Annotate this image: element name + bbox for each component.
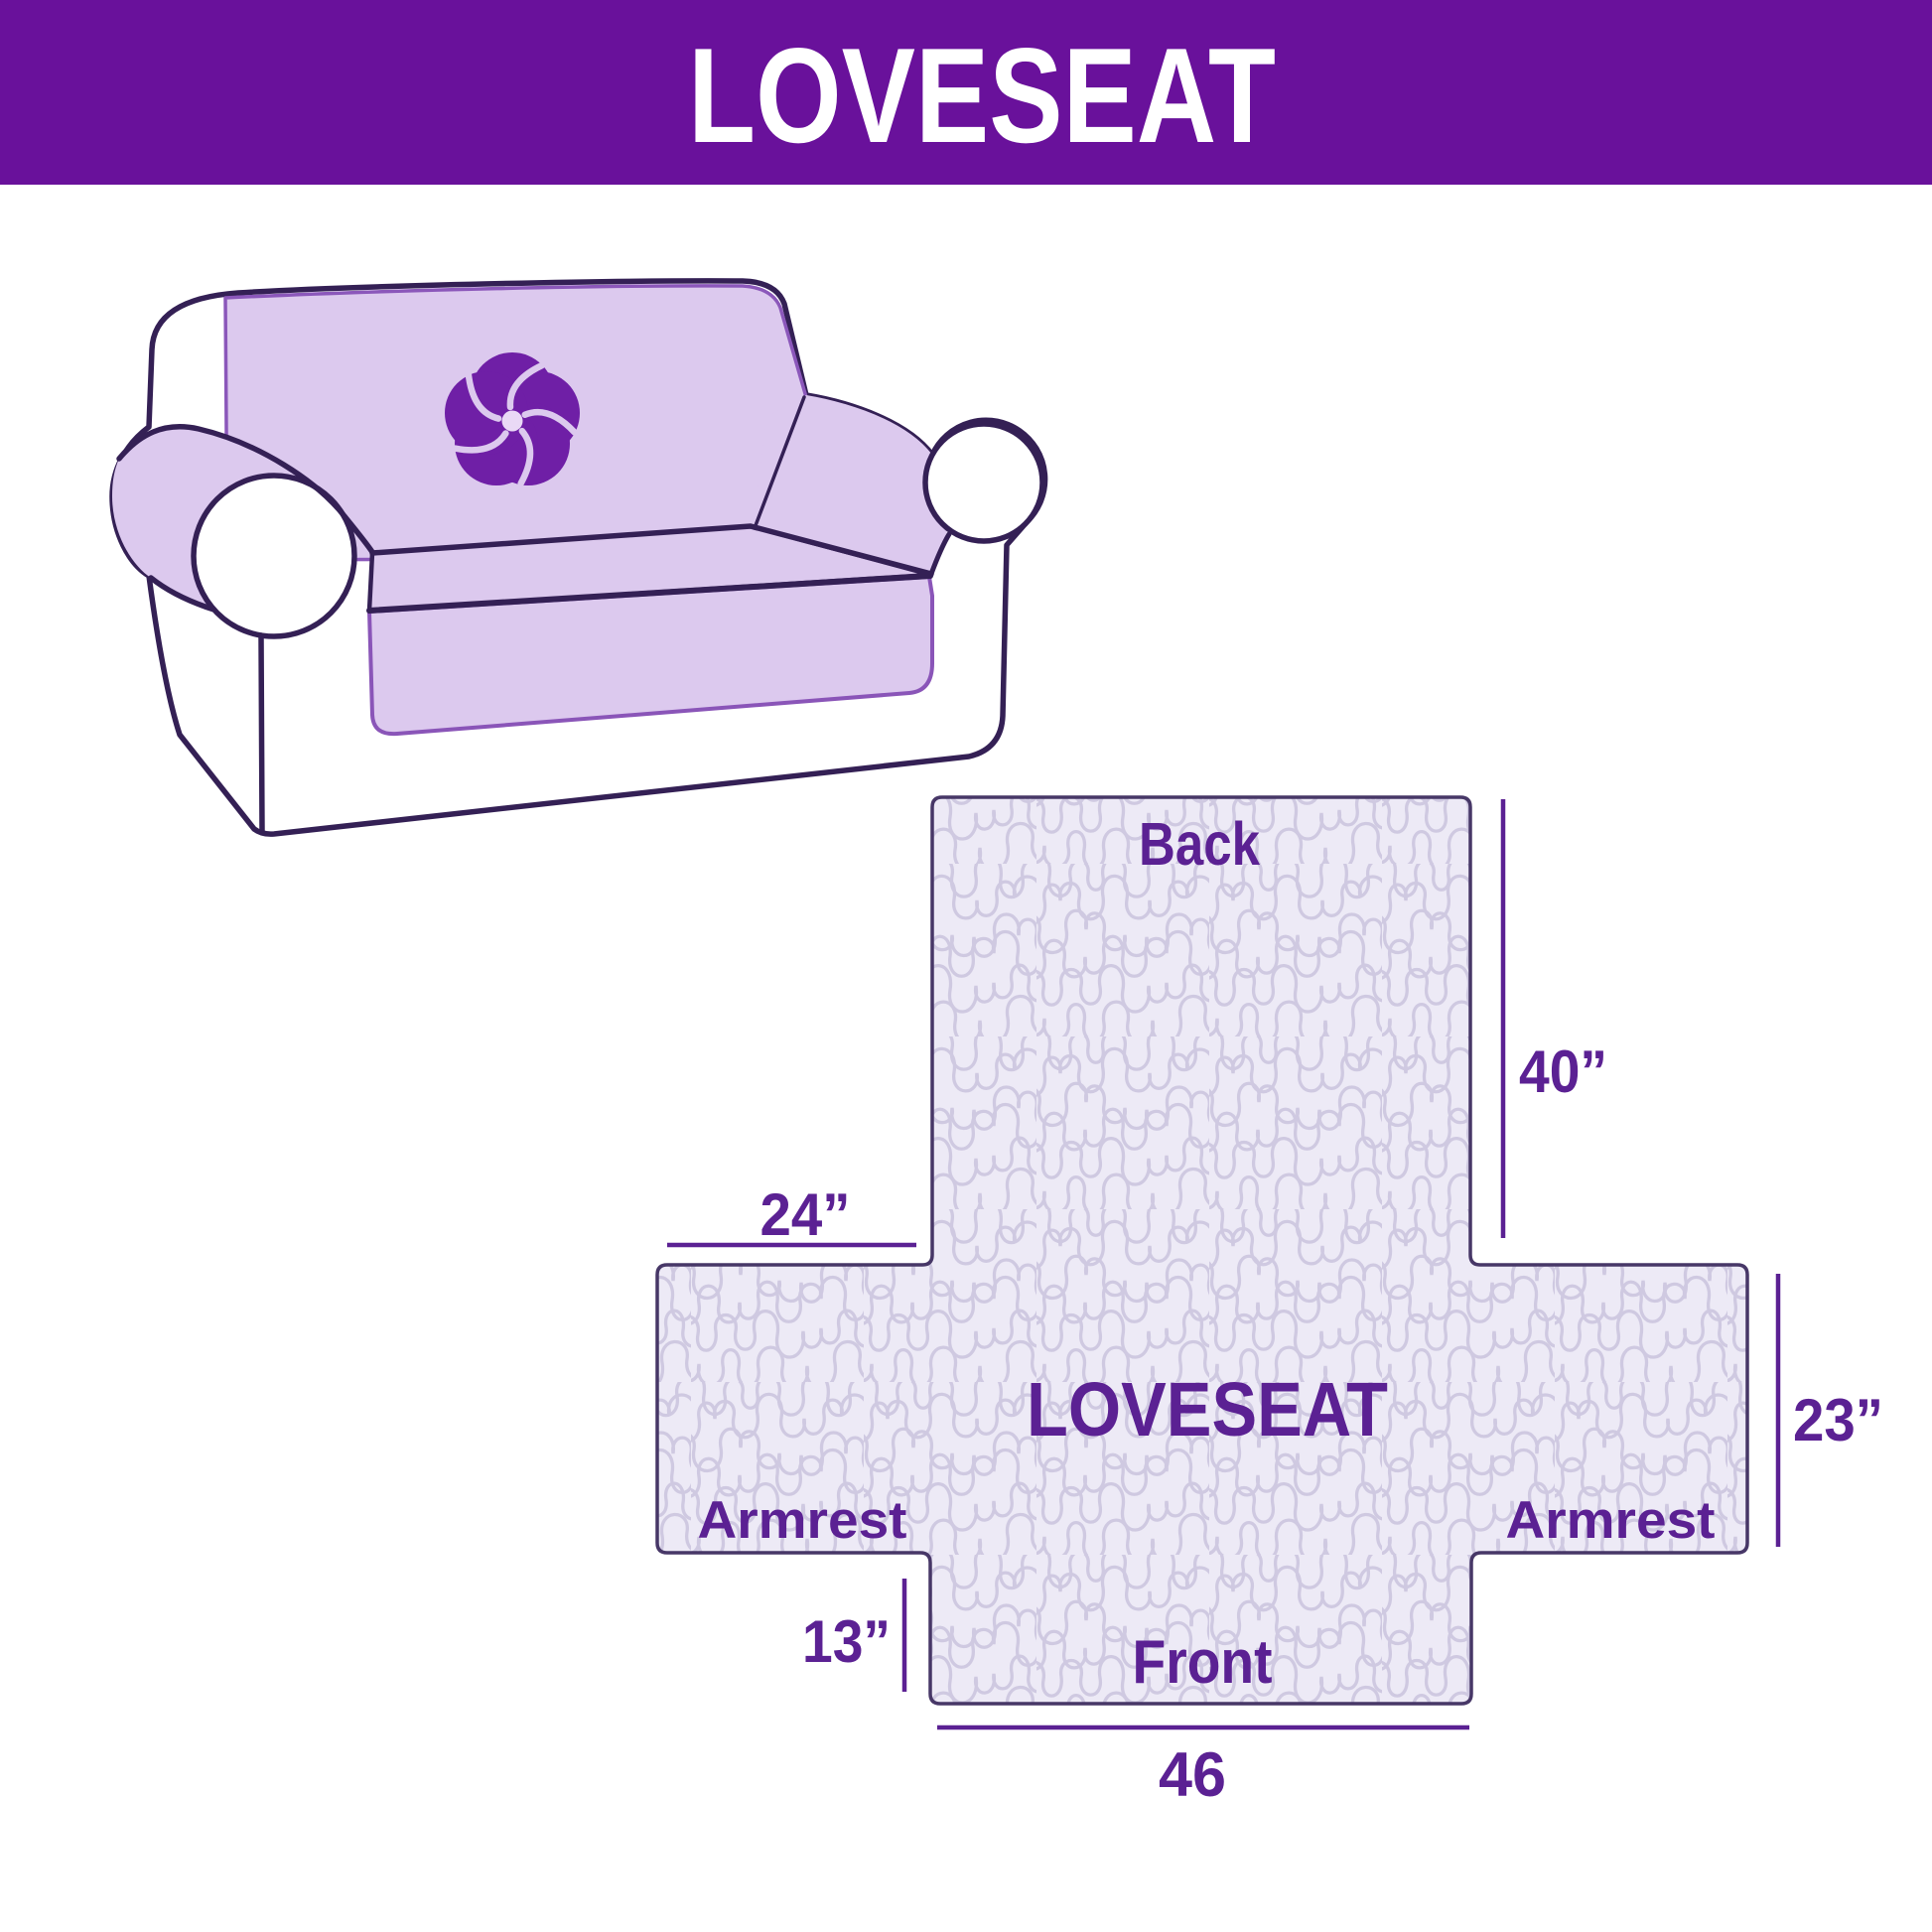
svg-text:Front: Front [1133,1628,1273,1697]
svg-text:40”: 40” [1519,1038,1607,1105]
svg-text:46: 46 [1159,1740,1226,1810]
svg-text:Armrest: Armrest [698,1491,907,1550]
svg-text:23”: 23” [1793,1387,1883,1453]
svg-text:13”: 13” [802,1608,891,1675]
svg-text:LOVESEAT: LOVESEAT [1027,1367,1388,1452]
svg-text:LOVESEAT: LOVESEAT [688,20,1276,171]
svg-text:Back: Back [1139,810,1260,878]
svg-text:24”: 24” [760,1181,851,1248]
svg-text:Armrest: Armrest [1506,1491,1716,1550]
